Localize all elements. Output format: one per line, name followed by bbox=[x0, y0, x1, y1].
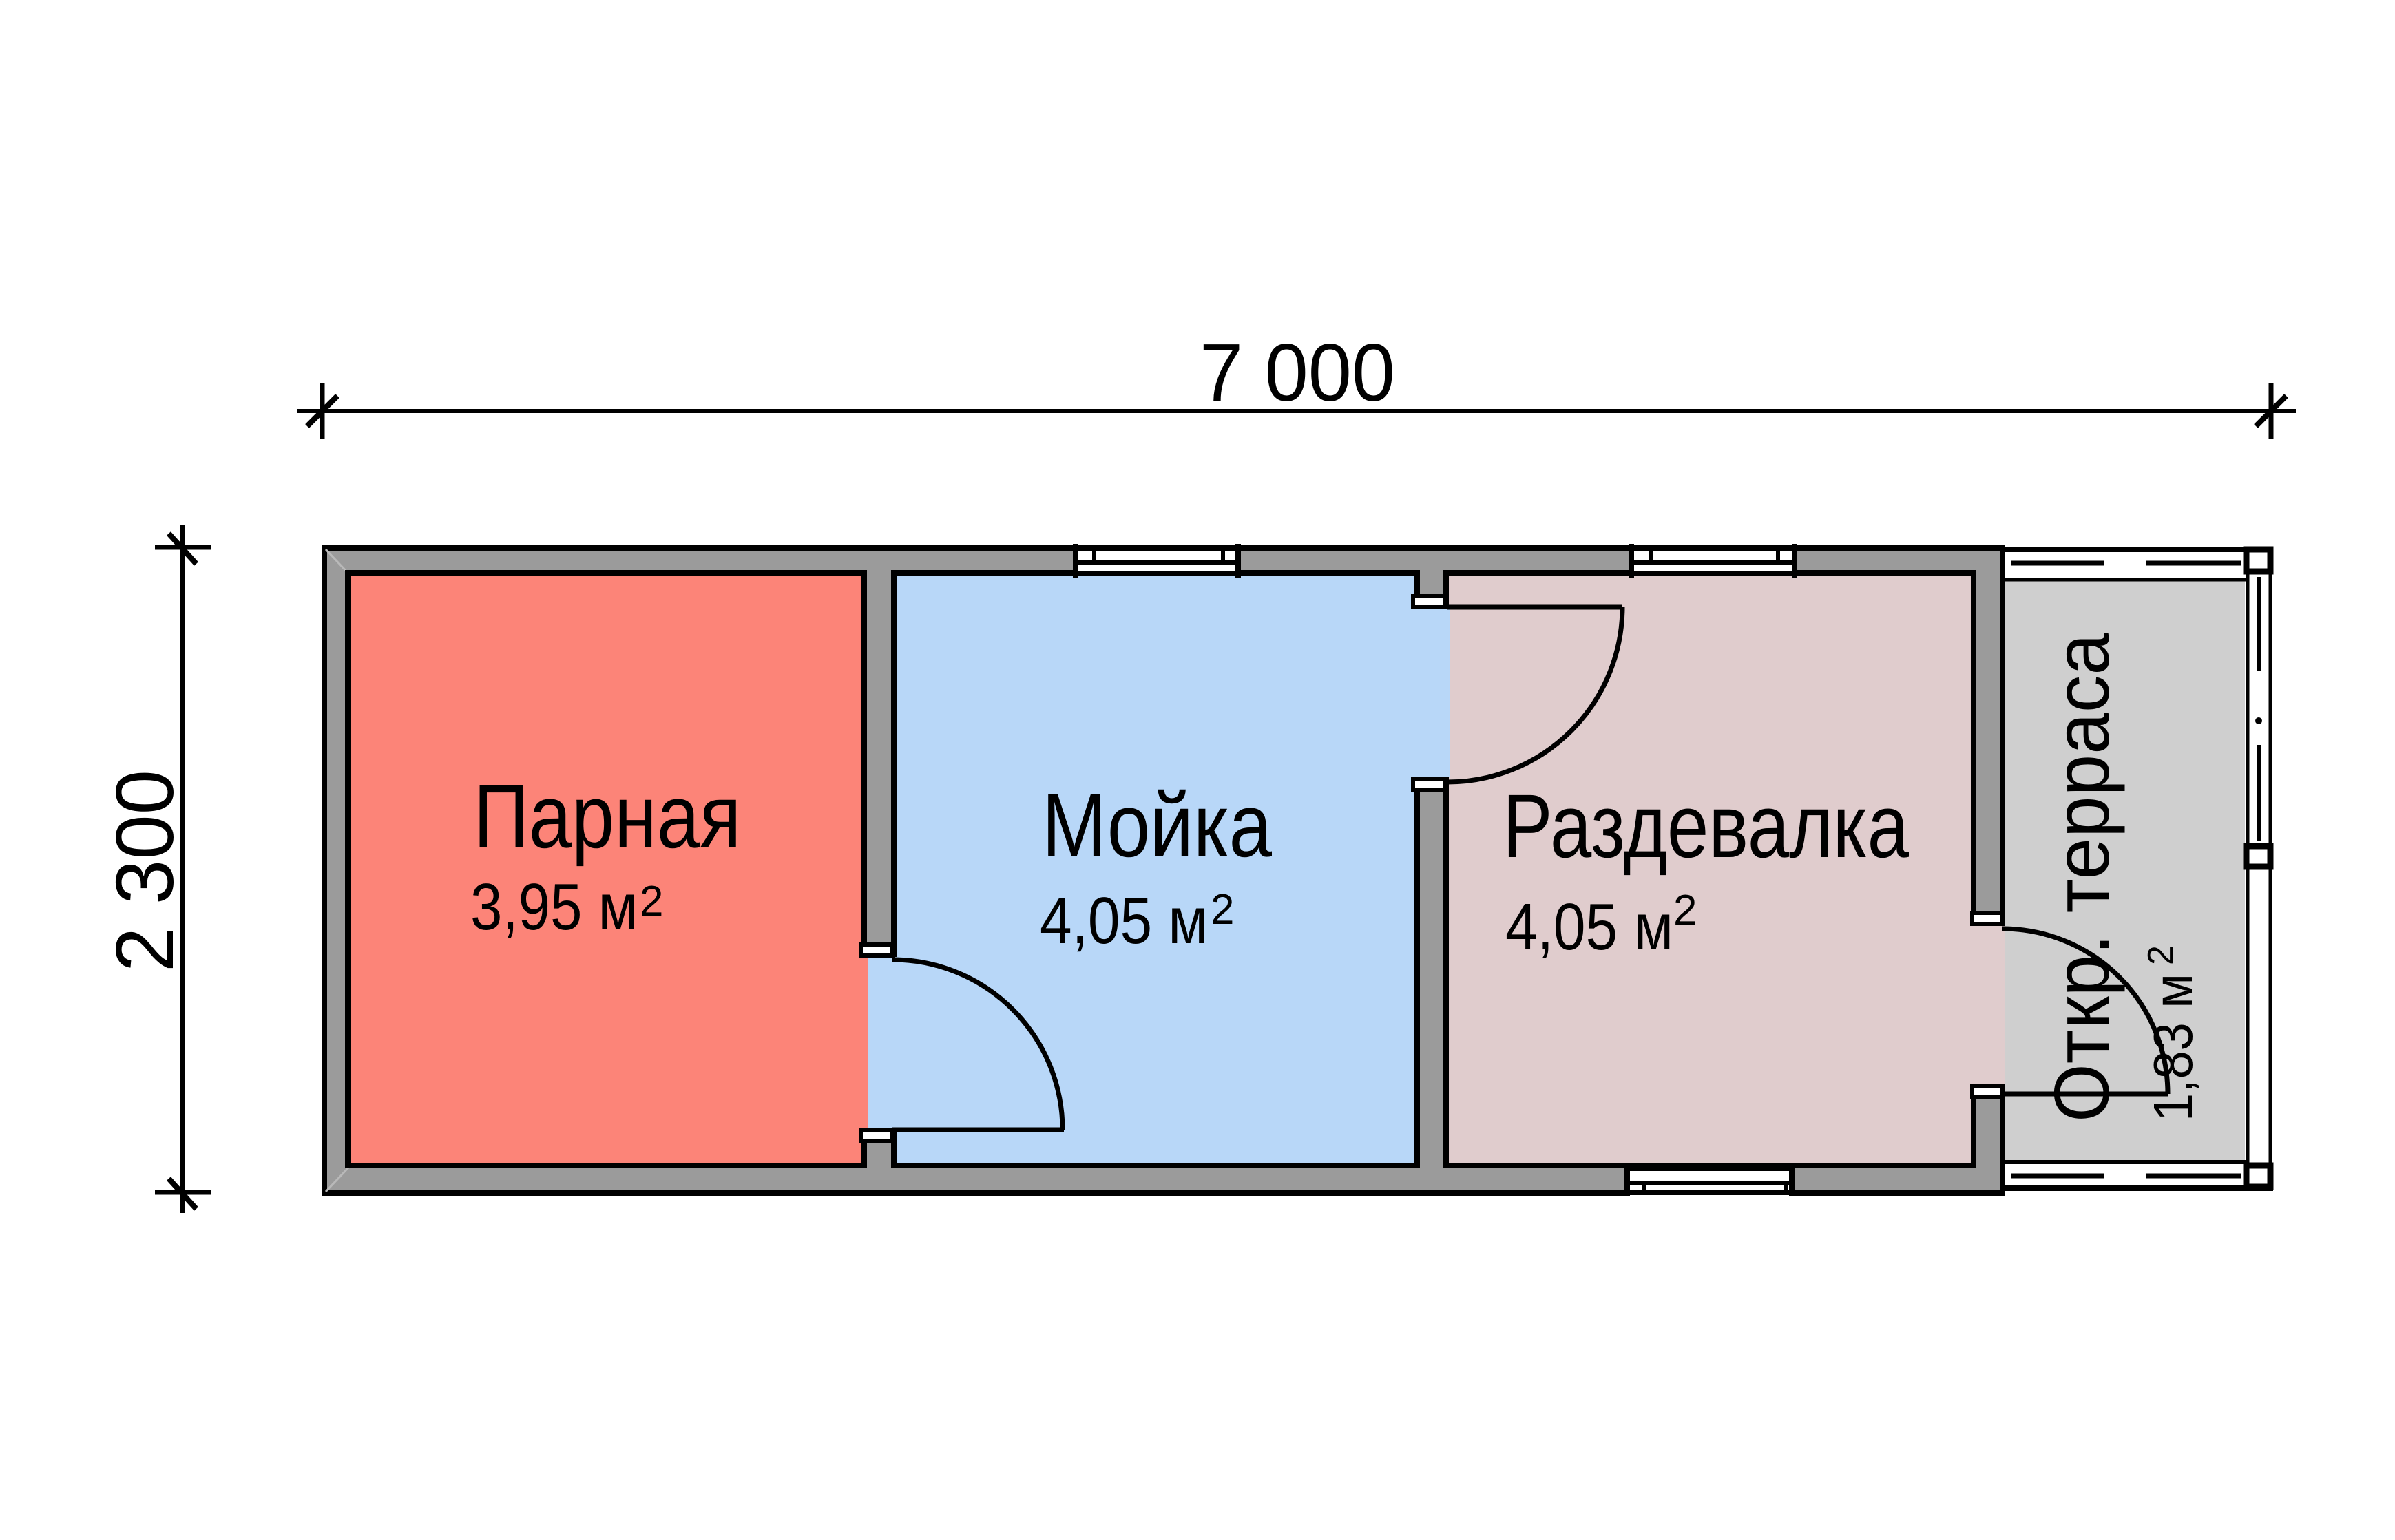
svg-text:2: 2 bbox=[640, 878, 663, 925]
svg-text:4,05 м: 4,05 м bbox=[1505, 890, 1673, 964]
svg-text:2 300: 2 300 bbox=[99, 770, 191, 972]
svg-text:Мойка: Мойка bbox=[1042, 774, 1272, 876]
svg-text:2: 2 bbox=[2141, 945, 2181, 965]
svg-text:2: 2 bbox=[1211, 886, 1234, 934]
svg-text:Парная: Парная bbox=[474, 766, 742, 867]
svg-text:7 000: 7 000 bbox=[1200, 327, 1395, 419]
svg-text:1,83 м: 1,83 м bbox=[2142, 973, 2204, 1121]
svg-text:2: 2 bbox=[1673, 887, 1697, 934]
svg-text:3,95 м: 3,95 м bbox=[470, 870, 638, 944]
svg-text:Откр. терраса: Откр. терраса bbox=[2038, 633, 2125, 1122]
svg-text:Раздевалка: Раздевалка bbox=[1503, 775, 1909, 876]
svg-text:4,05 м: 4,05 м bbox=[1040, 884, 1208, 958]
